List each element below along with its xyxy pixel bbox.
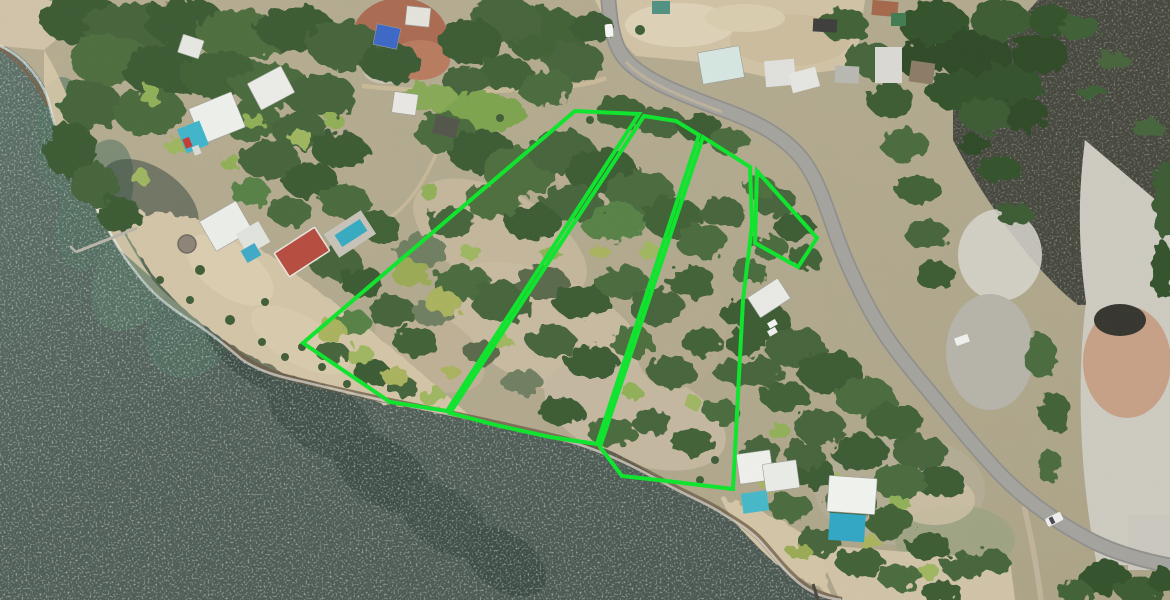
aerial-photo xyxy=(0,0,1170,600)
aerial-photo-stage xyxy=(0,0,1170,600)
photo-grain xyxy=(0,0,1170,600)
